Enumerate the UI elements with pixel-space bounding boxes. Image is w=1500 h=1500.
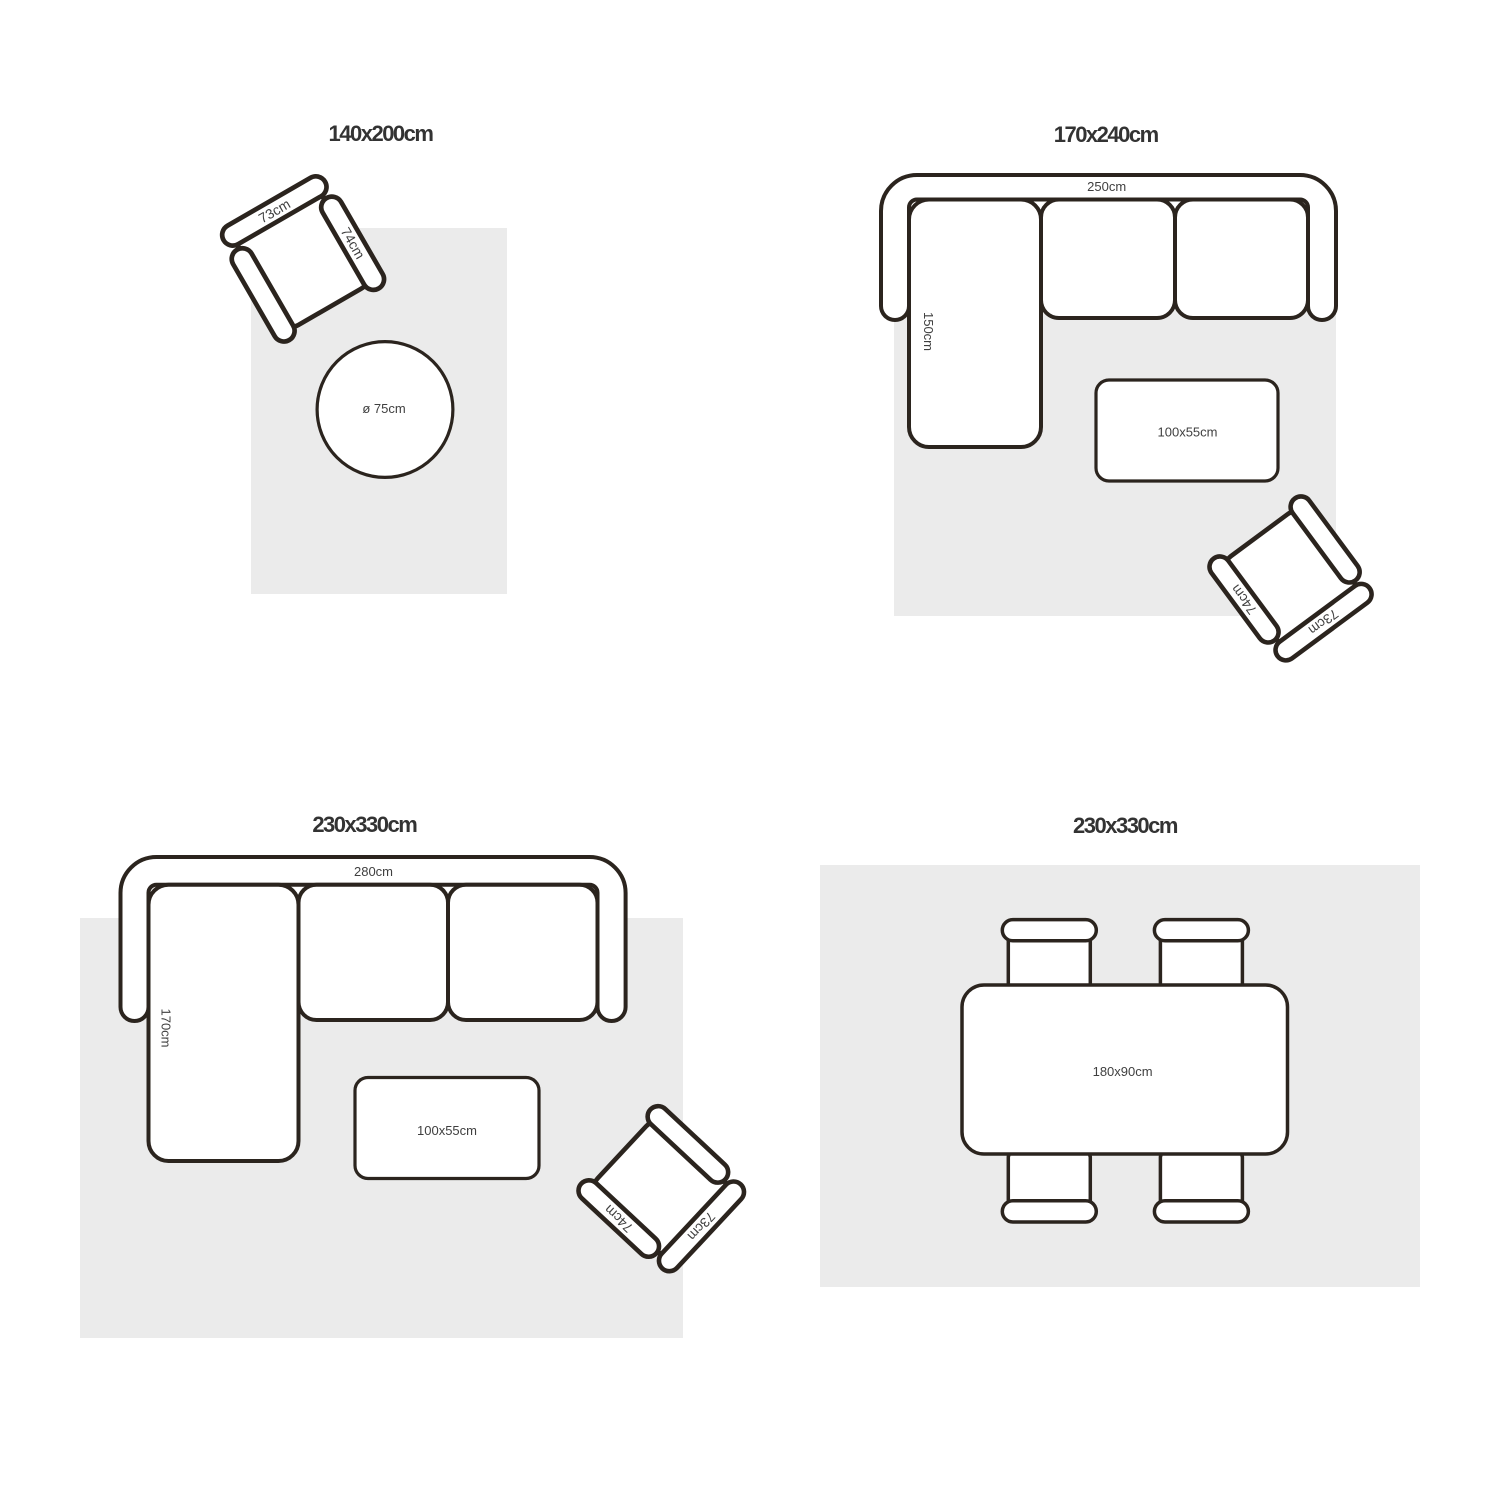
svg-text:170x240cm: 170x240cm: [1054, 122, 1159, 147]
svg-text:250cm: 250cm: [1087, 179, 1126, 194]
svg-text:100x55cm: 100x55cm: [1158, 425, 1218, 440]
svg-text:100x55cm: 100x55cm: [417, 1123, 477, 1138]
svg-text:230x330cm: 230x330cm: [312, 812, 417, 837]
svg-text:170cm: 170cm: [159, 1008, 174, 1047]
svg-text:140x200cm: 140x200cm: [329, 121, 434, 146]
svg-text:150cm: 150cm: [921, 312, 936, 351]
svg-text:230x330cm: 230x330cm: [1073, 813, 1178, 838]
svg-text:280cm: 280cm: [354, 864, 393, 879]
svg-text:ø 75cm: ø 75cm: [362, 401, 405, 416]
svg-text:180x90cm: 180x90cm: [1093, 1064, 1153, 1079]
